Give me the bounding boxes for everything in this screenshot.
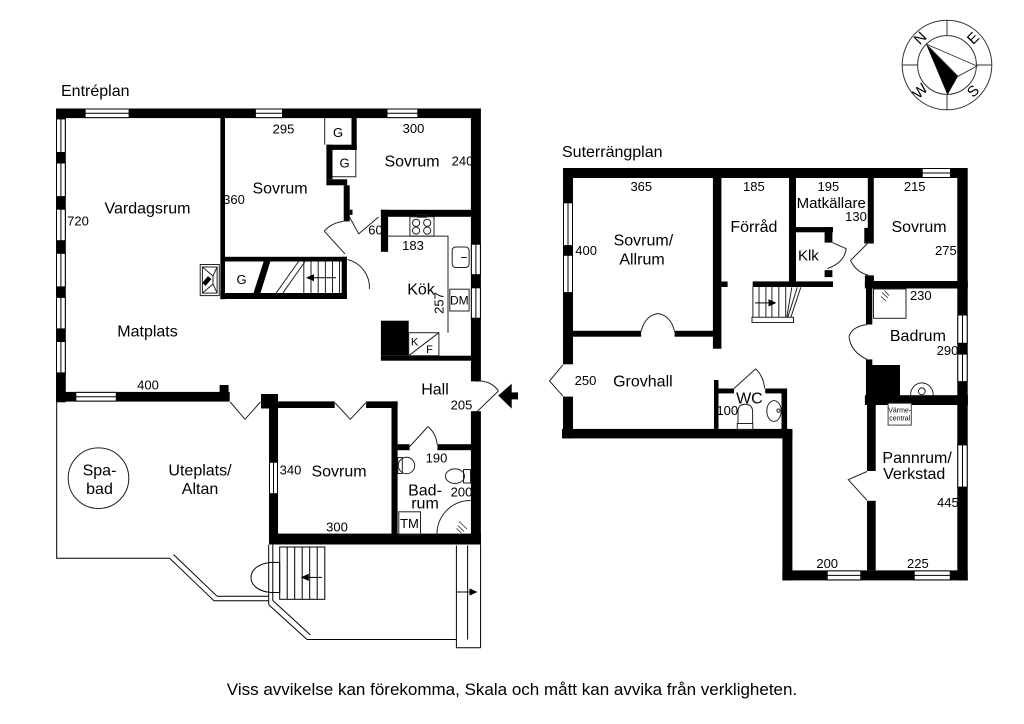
svg-text:205: 205: [451, 398, 473, 413]
svg-text:230: 230: [910, 288, 932, 303]
svg-text:Pannrum/: Pannrum/: [882, 450, 952, 467]
svg-text:295: 295: [273, 122, 295, 137]
svg-text:TM: TM: [400, 516, 419, 531]
svg-text:200: 200: [451, 485, 473, 500]
svg-text:100: 100: [716, 403, 738, 418]
svg-text:G: G: [339, 156, 349, 171]
svg-text:130: 130: [845, 209, 867, 224]
svg-text:WC: WC: [736, 390, 763, 407]
svg-text:300: 300: [403, 121, 425, 136]
svg-text:Allrum: Allrum: [619, 251, 664, 268]
svg-text:250: 250: [575, 373, 597, 388]
svg-text:Entréplan: Entréplan: [61, 83, 130, 100]
svg-text:445: 445: [937, 495, 959, 510]
svg-text:290: 290: [937, 343, 959, 358]
svg-text:240: 240: [452, 154, 474, 169]
svg-text:Suterrängplan: Suterrängplan: [562, 144, 663, 161]
svg-text:Vardagsrum: Vardagsrum: [105, 201, 191, 218]
svg-text:Förråd: Förråd: [730, 218, 777, 236]
svg-text:185: 185: [743, 179, 765, 194]
svg-text:215: 215: [904, 179, 926, 194]
svg-text:Sovrum: Sovrum: [252, 181, 307, 198]
svg-text:Grovhall: Grovhall: [613, 374, 673, 391]
svg-text:Altan: Altan: [182, 481, 218, 498]
svg-text:DM: DM: [450, 294, 469, 308]
svg-text:central: central: [889, 416, 910, 423]
svg-text:Matplats: Matplats: [117, 324, 177, 341]
svg-text:Sovrum: Sovrum: [311, 464, 366, 481]
svg-text:Verkstad: Verkstad: [883, 466, 945, 483]
svg-text:rum: rum: [411, 496, 439, 513]
svg-text:Sovrum/: Sovrum/: [614, 233, 674, 250]
svg-text:Sovrum: Sovrum: [384, 154, 439, 171]
svg-text:360: 360: [223, 192, 245, 207]
svg-text:225: 225: [907, 556, 929, 571]
svg-text:G: G: [333, 125, 343, 140]
svg-text:Sovrum: Sovrum: [891, 219, 946, 236]
svg-text:60: 60: [368, 223, 382, 238]
svg-text:Viss avvikelse kan förekomma,: Viss avvikelse kan förekomma, Skala och …: [227, 680, 797, 699]
svg-text:200: 200: [816, 556, 838, 571]
svg-text:340: 340: [280, 463, 302, 478]
svg-text:183: 183: [402, 238, 424, 253]
svg-text:F: F: [426, 344, 433, 356]
svg-text:300: 300: [326, 520, 348, 535]
svg-text:257: 257: [432, 292, 447, 314]
svg-text:G: G: [236, 272, 246, 287]
svg-text:Hall: Hall: [421, 382, 449, 399]
svg-text:400: 400: [575, 243, 597, 258]
svg-text:365: 365: [630, 179, 652, 194]
svg-text:190: 190: [426, 451, 448, 466]
svg-text:195: 195: [818, 179, 840, 194]
svg-text:Spa-: Spa-: [83, 463, 117, 480]
svg-text:K: K: [411, 337, 419, 349]
svg-text:400: 400: [137, 378, 159, 393]
svg-text:Värme-: Värme-: [888, 408, 912, 415]
svg-text:275: 275: [935, 243, 957, 258]
svg-text:Klk: Klk: [798, 247, 819, 264]
svg-text:Uteplats/: Uteplats/: [168, 463, 232, 480]
svg-text:720: 720: [67, 214, 89, 229]
svg-text:bad: bad: [86, 481, 113, 498]
